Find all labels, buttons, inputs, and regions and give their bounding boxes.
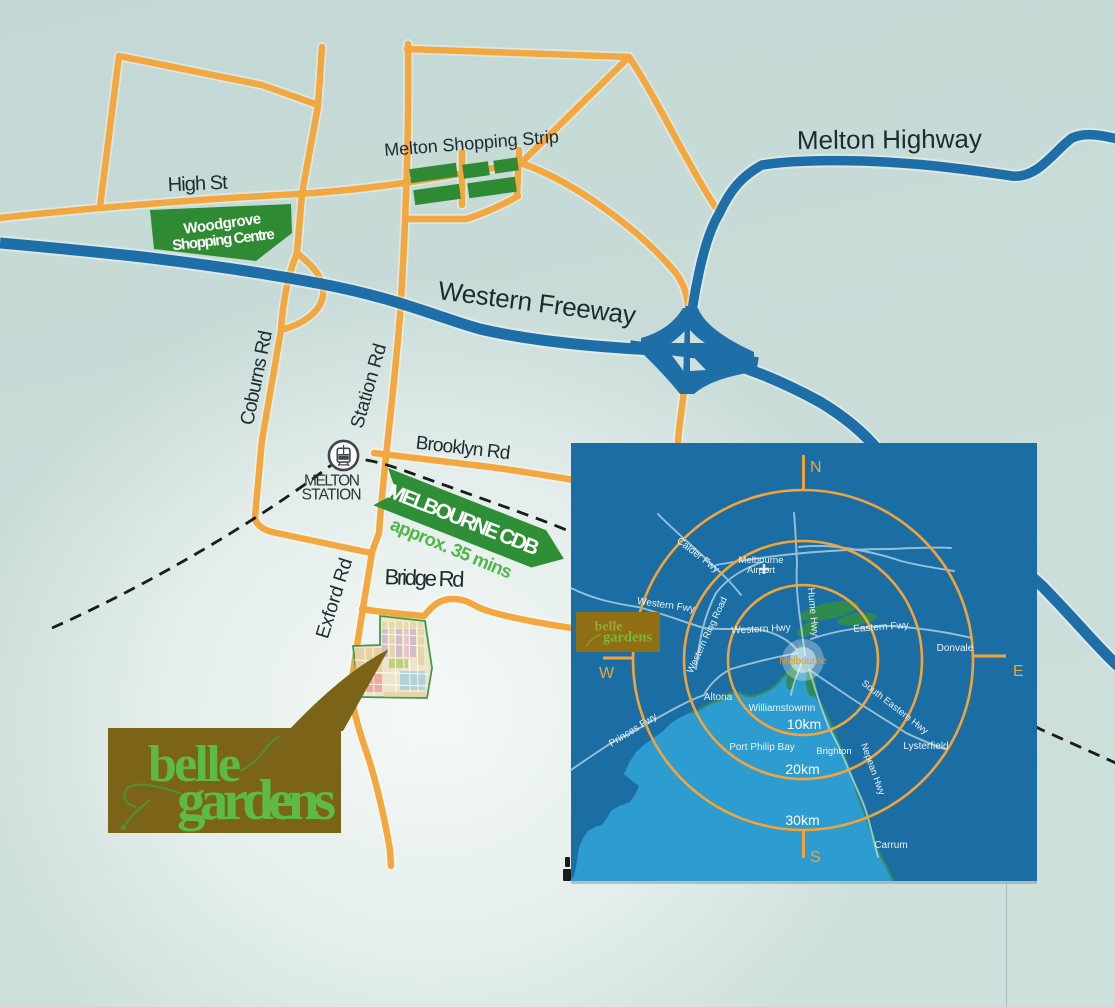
svg-text:Brighton: Brighton bbox=[816, 746, 851, 757]
svg-text:gardens: gardens bbox=[603, 630, 653, 646]
svg-text:High St: High St bbox=[167, 172, 228, 197]
svg-text:Williamstowmn: Williamstowmn bbox=[749, 703, 816, 714]
svg-text:Airport: Airport bbox=[747, 565, 775, 576]
svg-text:Melton Highway: Melton Highway bbox=[797, 123, 982, 155]
svg-text:Altona: Altona bbox=[704, 692, 733, 703]
svg-text:30km: 30km bbox=[785, 812, 819, 828]
svg-text:Lysterfield: Lysterfield bbox=[903, 741, 948, 752]
svg-text:gardens: gardens bbox=[177, 769, 336, 832]
svg-text:20km: 20km bbox=[785, 761, 819, 777]
svg-text:Carrum: Carrum bbox=[874, 840, 907, 851]
svg-text:Donvale: Donvale bbox=[937, 643, 974, 654]
svg-text:W: W bbox=[599, 665, 615, 682]
svg-text:Bridge Rd: Bridge Rd bbox=[384, 564, 465, 592]
svg-text:Melbourne: Melbourne bbox=[779, 656, 827, 667]
svg-text:N: N bbox=[810, 459, 822, 476]
svg-text:S: S bbox=[810, 849, 821, 866]
svg-text:10km: 10km bbox=[787, 716, 821, 732]
svg-text:STATION: STATION bbox=[302, 487, 362, 504]
svg-text:Port Philip Bay: Port Philip Bay bbox=[729, 742, 795, 753]
svg-text:E: E bbox=[1013, 663, 1024, 680]
